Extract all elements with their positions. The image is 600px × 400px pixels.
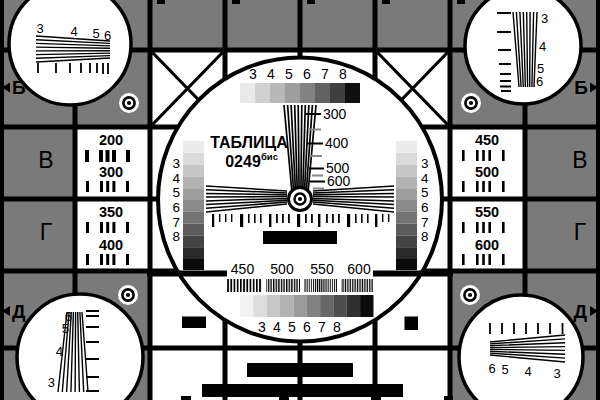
- wedge-label: 4: [524, 364, 531, 379]
- test-card-svg: 3 4 5 6 3 4 5 6 6 5 4 3 6 5 4 3 Б Б: [0, 0, 600, 400]
- wedge-label: 4: [539, 39, 546, 54]
- row-letter-left-v: В: [38, 147, 53, 173]
- corner-circle-top-left: 3 4 5 6: [9, 0, 131, 105]
- panel-value: 200: [99, 132, 123, 148]
- row-marker-right-bottom: Д: [573, 301, 587, 322]
- corner-circle-top-right: 3 4 5 6: [465, 0, 581, 104]
- wedge-label: 3: [553, 366, 560, 381]
- black-reference-rect-left: [182, 317, 206, 329]
- burst-label: 550: [310, 261, 334, 277]
- row-letter-right-v: В: [572, 147, 587, 173]
- burst-label: 500: [270, 261, 294, 277]
- row-marker-right-top: Б: [574, 77, 588, 98]
- gray-step-label: 3: [421, 156, 429, 171]
- right-grayscale-column: [396, 141, 417, 270]
- gray-step-label: 7: [318, 319, 326, 335]
- wedge-label: 5: [62, 321, 69, 336]
- row-letter-right-g: Г: [574, 219, 587, 245]
- wedge-label: 6: [104, 28, 111, 43]
- gray-step-label: 8: [421, 229, 429, 244]
- gray-step-label: 6: [303, 319, 311, 335]
- gray-step-label: 6: [172, 200, 180, 215]
- panel-value: 350: [99, 204, 123, 220]
- wedge-label: 6: [488, 361, 495, 376]
- panel-value: 400: [99, 237, 123, 253]
- alignment-target-bottom-left: [118, 285, 138, 305]
- gray-step-label: 3: [249, 66, 257, 82]
- wedge-label: 5: [92, 26, 99, 41]
- wedge-label: 3: [48, 375, 55, 390]
- tv-test-card: 3 4 5 6 3 4 5 6 6 5 4 3 6 5 4 3 Б Б: [0, 0, 600, 400]
- gray-step-label: 7: [321, 66, 329, 82]
- gray-step-label: 4: [267, 66, 275, 82]
- row-letter-left-g: Г: [40, 219, 53, 245]
- gray-step-label: 5: [285, 66, 293, 82]
- gray-step-label: 8: [172, 229, 180, 244]
- burst-label: 450: [231, 261, 255, 277]
- gray-step-label: 6: [421, 200, 429, 215]
- gray-step-label: 3: [172, 156, 180, 171]
- bottom-black-bar-lower: [202, 384, 403, 397]
- bottom-black-bar-upper: [247, 363, 353, 377]
- card-title: ТАБЛИЦА: [210, 134, 288, 151]
- gray-step-label: 3: [258, 319, 266, 335]
- top-grayscale-bar: [240, 83, 360, 103]
- gray-step-label: 8: [333, 319, 341, 335]
- gray-step-label: 5: [421, 185, 429, 200]
- panel-value: 450: [475, 132, 499, 148]
- gray-step-label: 4: [172, 171, 180, 186]
- wedge-label: 6: [536, 74, 543, 89]
- center-bullseye-target: [289, 188, 312, 211]
- gray-step-label: 4: [421, 171, 429, 186]
- panel-value: 300: [99, 164, 123, 180]
- corner-circle-bottom-right: 6 5 4 3: [459, 295, 583, 400]
- wedge-label: 3: [541, 11, 548, 26]
- alignment-target-top-left: [119, 93, 139, 113]
- frequency-label: 400: [325, 135, 349, 151]
- left-grayscale-column: [183, 141, 204, 270]
- gray-step-label: 5: [172, 185, 180, 200]
- gray-step-label: 6: [303, 66, 311, 82]
- wedge-label: 3: [36, 21, 43, 36]
- wedge-label: 5: [501, 362, 508, 377]
- card-code-suffix: бис: [261, 151, 278, 162]
- frequency-label: 600: [327, 173, 351, 189]
- frequency-label: 300: [323, 106, 347, 122]
- panel-value: 550: [475, 204, 499, 220]
- corner-circle-bottom-left: 6 5 4 3: [17, 294, 143, 400]
- bottom-grayscale-bar: [240, 295, 374, 317]
- alignment-target-top-right: [461, 93, 481, 113]
- row-marker-left-bottom: Д: [12, 301, 26, 322]
- wedge-label: 4: [56, 344, 63, 359]
- alignment-target-bottom-right: [460, 285, 480, 305]
- panel-value: 600: [475, 237, 499, 253]
- row-marker-left-top: Б: [12, 77, 26, 98]
- wedge-label: 4: [70, 24, 77, 39]
- black-reference-bar: [263, 231, 337, 244]
- gray-step-label: 7: [172, 215, 180, 230]
- burst-label: 600: [347, 261, 371, 277]
- frequency-burst-groups: [227, 279, 373, 292]
- gray-step-label: 7: [421, 215, 429, 230]
- gray-step-label: 4: [273, 319, 281, 335]
- panel-value: 500: [475, 164, 499, 180]
- gray-step-label: 5: [288, 319, 296, 335]
- card-code: 0249: [225, 153, 261, 170]
- gray-step-label: 8: [339, 66, 347, 82]
- black-reference-rect-right: [405, 317, 419, 331]
